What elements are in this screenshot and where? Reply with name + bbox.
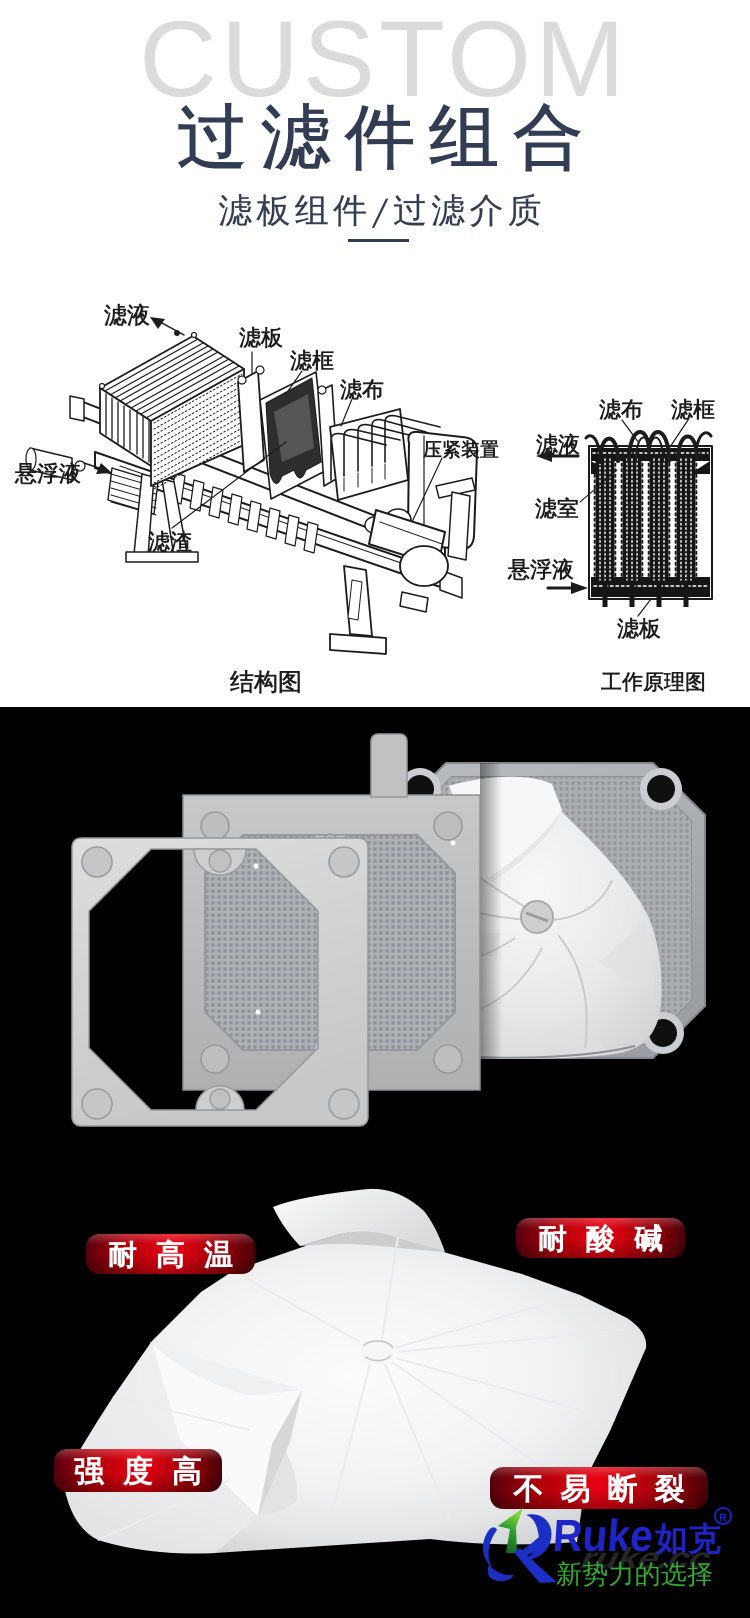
- svg-text:R: R: [719, 1512, 727, 1524]
